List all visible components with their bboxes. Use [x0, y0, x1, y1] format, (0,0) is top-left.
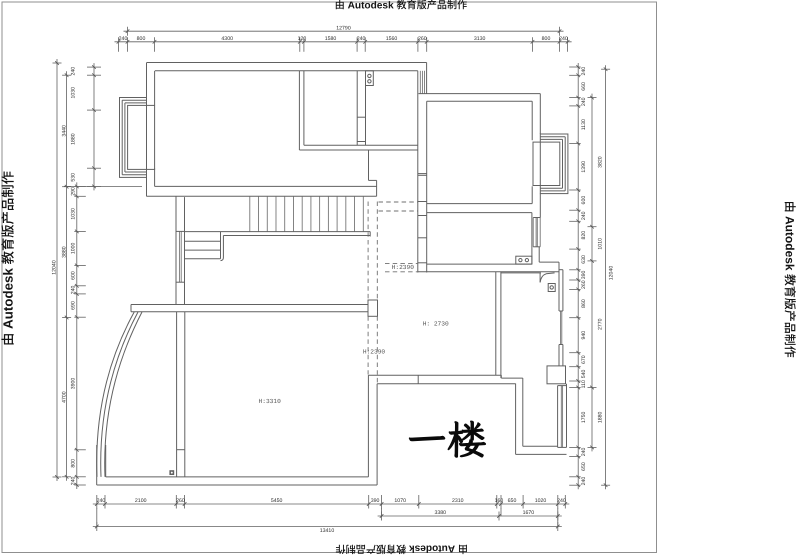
svg-text:2770: 2770 [598, 318, 604, 330]
svg-text:1750: 1750 [581, 412, 587, 424]
svg-text:1130: 1130 [581, 119, 587, 130]
svg-text:260: 260 [581, 280, 587, 289]
svg-text:390: 390 [581, 270, 587, 279]
svg-text:800: 800 [542, 36, 551, 42]
svg-text:690: 690 [70, 301, 76, 310]
svg-text:110: 110 [581, 380, 587, 388]
svg-text:4300: 4300 [221, 36, 233, 42]
svg-text:390: 390 [371, 498, 380, 504]
svg-text:260: 260 [176, 498, 185, 504]
svg-text:240: 240 [581, 211, 587, 220]
svg-text:1030: 1030 [70, 87, 76, 99]
svg-text:240: 240 [97, 498, 106, 504]
svg-text:3880: 3880 [61, 246, 67, 258]
svg-text:3380: 3380 [435, 510, 447, 516]
svg-text:240: 240 [70, 67, 76, 76]
svg-text:600: 600 [581, 196, 587, 205]
svg-text:12790: 12790 [336, 25, 351, 31]
svg-text:940: 940 [581, 331, 587, 340]
svg-text:160: 160 [495, 498, 504, 504]
svg-text:H:2390: H:2390 [363, 348, 386, 355]
svg-text:4700: 4700 [61, 391, 67, 403]
svg-text:1030: 1030 [70, 208, 76, 220]
svg-text:860: 860 [581, 299, 587, 308]
svg-text:1880: 1880 [70, 133, 76, 145]
svg-text:120: 120 [298, 36, 307, 42]
svg-text:240: 240 [581, 447, 587, 456]
svg-text:240: 240 [119, 36, 128, 42]
svg-text:240: 240 [581, 477, 587, 486]
svg-text:670: 670 [581, 355, 587, 364]
svg-text:3130: 3130 [474, 36, 486, 42]
svg-text:260: 260 [418, 36, 427, 42]
svg-text:540: 540 [581, 369, 587, 378]
svg-text:800: 800 [137, 36, 146, 42]
svg-text:3820: 3820 [598, 156, 604, 168]
svg-text:820: 820 [581, 231, 587, 240]
svg-text:1580: 1580 [325, 36, 337, 42]
svg-text:1010: 1010 [598, 238, 604, 250]
svg-text:240: 240 [357, 36, 366, 42]
svg-text:800: 800 [70, 459, 76, 468]
svg-text:1000: 1000 [70, 243, 76, 255]
svg-text:2310: 2310 [452, 498, 464, 504]
svg-text:660: 660 [581, 82, 587, 91]
svg-text:H:3310: H:3310 [259, 398, 282, 405]
svg-text:240: 240 [581, 67, 587, 76]
svg-text:630: 630 [581, 255, 587, 264]
svg-text:290: 290 [70, 187, 76, 196]
svg-text:240: 240 [557, 498, 566, 504]
svg-text:H: 2730: H: 2730 [423, 321, 449, 328]
svg-text:240: 240 [581, 97, 587, 106]
svg-text:1560: 1560 [386, 36, 398, 42]
svg-text:600: 600 [70, 271, 76, 280]
svg-text:13410: 13410 [320, 528, 335, 534]
svg-text:1670: 1670 [523, 510, 535, 516]
svg-text:12040: 12040 [609, 266, 615, 281]
svg-text:5450: 5450 [271, 498, 283, 504]
svg-text:1020: 1020 [535, 498, 547, 504]
svg-text:12040: 12040 [52, 260, 58, 275]
svg-text:240: 240 [70, 476, 76, 485]
svg-text:1390: 1390 [581, 161, 587, 173]
svg-text:1070: 1070 [394, 498, 406, 504]
svg-text:240: 240 [559, 36, 568, 42]
svg-text:H:2390: H:2390 [392, 264, 415, 271]
svg-text:650: 650 [508, 498, 517, 504]
svg-text:2100: 2100 [135, 498, 147, 504]
svg-text:240: 240 [70, 285, 76, 294]
svg-text:3440: 3440 [61, 125, 67, 137]
svg-text:650: 650 [581, 462, 587, 471]
svg-text:530: 530 [70, 173, 76, 182]
svg-text:1880: 1880 [598, 412, 604, 424]
svg-text:3900: 3900 [70, 378, 76, 390]
